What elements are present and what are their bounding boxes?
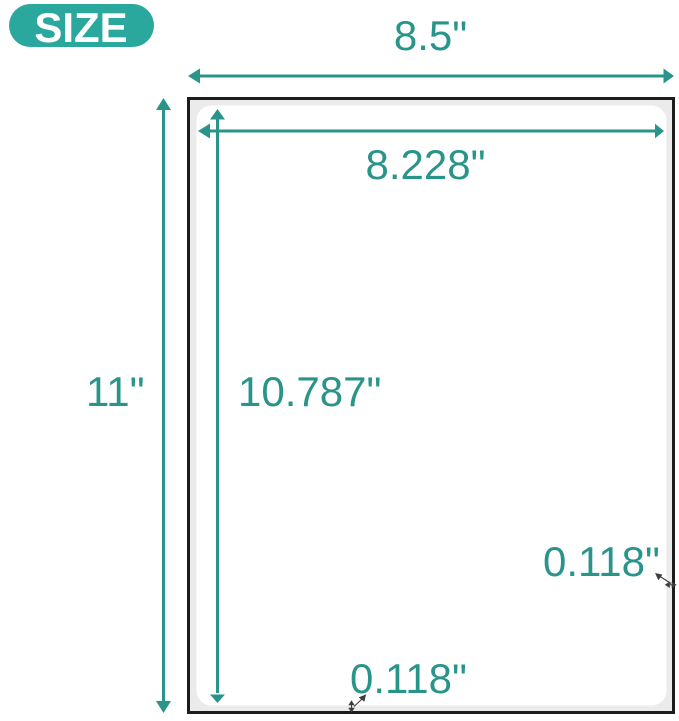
svg-text:0.118": 0.118" — [543, 538, 660, 585]
svg-text:8.228": 8.228" — [365, 141, 485, 188]
svg-text:10.787": 10.787" — [238, 368, 381, 415]
svg-text:11": 11" — [86, 368, 145, 415]
svg-text:8.5": 8.5" — [394, 12, 467, 59]
svg-text:SIZE: SIZE — [34, 4, 127, 51]
svg-text:0.118": 0.118" — [350, 655, 467, 702]
